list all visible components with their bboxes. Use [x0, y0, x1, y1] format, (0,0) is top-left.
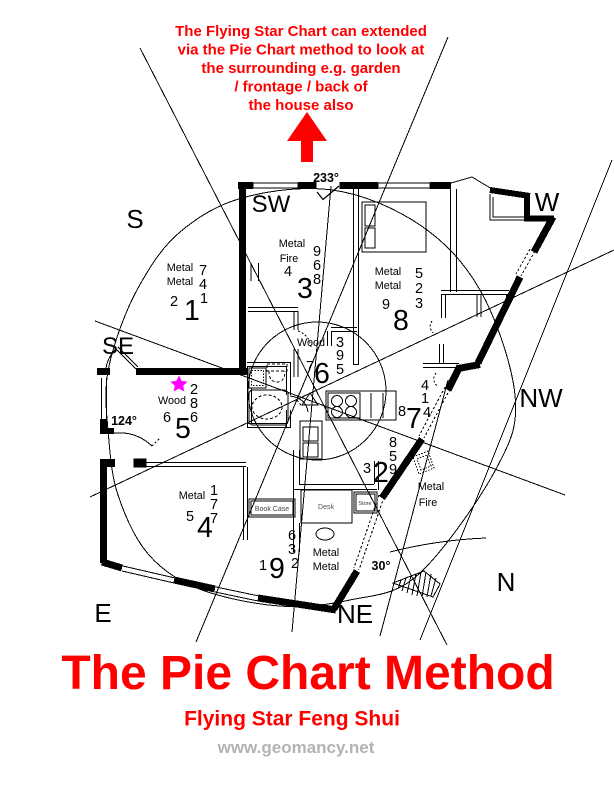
svg-text:Metal: Metal [375, 266, 401, 278]
svg-text:30°: 30° [372, 559, 391, 573]
svg-text:2: 2 [373, 457, 389, 489]
svg-text:Flying Star Feng Shui: Flying Star Feng Shui [184, 708, 400, 731]
svg-text:Metal: Metal [167, 276, 193, 288]
svg-text:5: 5 [175, 413, 191, 445]
svg-text:6: 6 [314, 358, 330, 390]
svg-text:Wood: Wood [158, 395, 186, 407]
svg-text:8: 8 [398, 404, 406, 420]
svg-text:NW: NW [519, 383, 563, 413]
svg-text:6: 6 [190, 410, 198, 426]
svg-text:3: 3 [297, 273, 313, 305]
svg-text:Metal: Metal [179, 490, 205, 502]
svg-text:the house also: the house also [248, 97, 353, 114]
svg-text:The Flying Star Chart can exte: The Flying Star Chart can extended [175, 23, 427, 40]
svg-text:Book Case: Book Case [255, 506, 289, 513]
svg-text:NE: NE [337, 599, 373, 629]
svg-text:7: 7 [306, 359, 314, 375]
svg-text:124°: 124° [111, 414, 137, 428]
svg-text:8: 8 [393, 305, 409, 337]
svg-text:W: W [535, 187, 560, 217]
svg-text:The Pie Chart Method: The Pie Chart Method [61, 647, 554, 700]
svg-text:Wood: Wood [297, 337, 325, 349]
svg-text:5: 5 [415, 266, 423, 282]
svg-text:233°: 233° [313, 171, 339, 185]
svg-text:8: 8 [313, 272, 321, 288]
svg-text:5: 5 [186, 509, 194, 525]
svg-text:Metal: Metal [375, 280, 401, 292]
svg-text:9: 9 [389, 462, 397, 478]
svg-text:SE: SE [102, 333, 134, 360]
svg-text:Store: Store [358, 501, 371, 507]
svg-text:Desk: Desk [318, 504, 334, 511]
svg-text:2: 2 [415, 281, 423, 297]
svg-text:Fire: Fire [419, 497, 438, 509]
svg-text:Metal: Metal [167, 262, 193, 274]
svg-text:3: 3 [363, 461, 371, 477]
svg-text:E: E [94, 598, 111, 628]
svg-text:/ frontage / back of: / frontage / back of [234, 79, 368, 96]
svg-text:6: 6 [163, 410, 171, 426]
svg-text:via the Pie Chart method to lo: via the Pie Chart method to look at [178, 42, 425, 59]
svg-text:S: S [126, 204, 143, 234]
svg-text:Metal: Metal [313, 547, 339, 559]
svg-text:2: 2 [170, 294, 178, 310]
svg-text:the surrounding e.g. garden: the surrounding e.g. garden [201, 60, 400, 77]
svg-text:Metal: Metal [279, 238, 305, 250]
svg-text:2: 2 [291, 556, 299, 572]
svg-text:1: 1 [184, 295, 200, 327]
svg-text:4: 4 [423, 405, 431, 421]
svg-text:N: N [497, 567, 516, 597]
svg-text:1: 1 [200, 291, 208, 307]
svg-text:5: 5 [336, 362, 344, 378]
svg-text:www.geomancy.net: www.geomancy.net [217, 738, 375, 757]
svg-text:7: 7 [406, 403, 422, 435]
svg-text:Metal: Metal [418, 481, 444, 493]
svg-text:3: 3 [415, 296, 423, 312]
svg-text:9: 9 [382, 297, 390, 313]
svg-text:Metal: Metal [313, 561, 339, 573]
svg-text:1: 1 [259, 558, 267, 574]
svg-text:SW: SW [252, 191, 291, 218]
svg-text:4: 4 [284, 264, 292, 280]
svg-text:9: 9 [269, 553, 285, 585]
svg-text:4: 4 [197, 512, 213, 544]
